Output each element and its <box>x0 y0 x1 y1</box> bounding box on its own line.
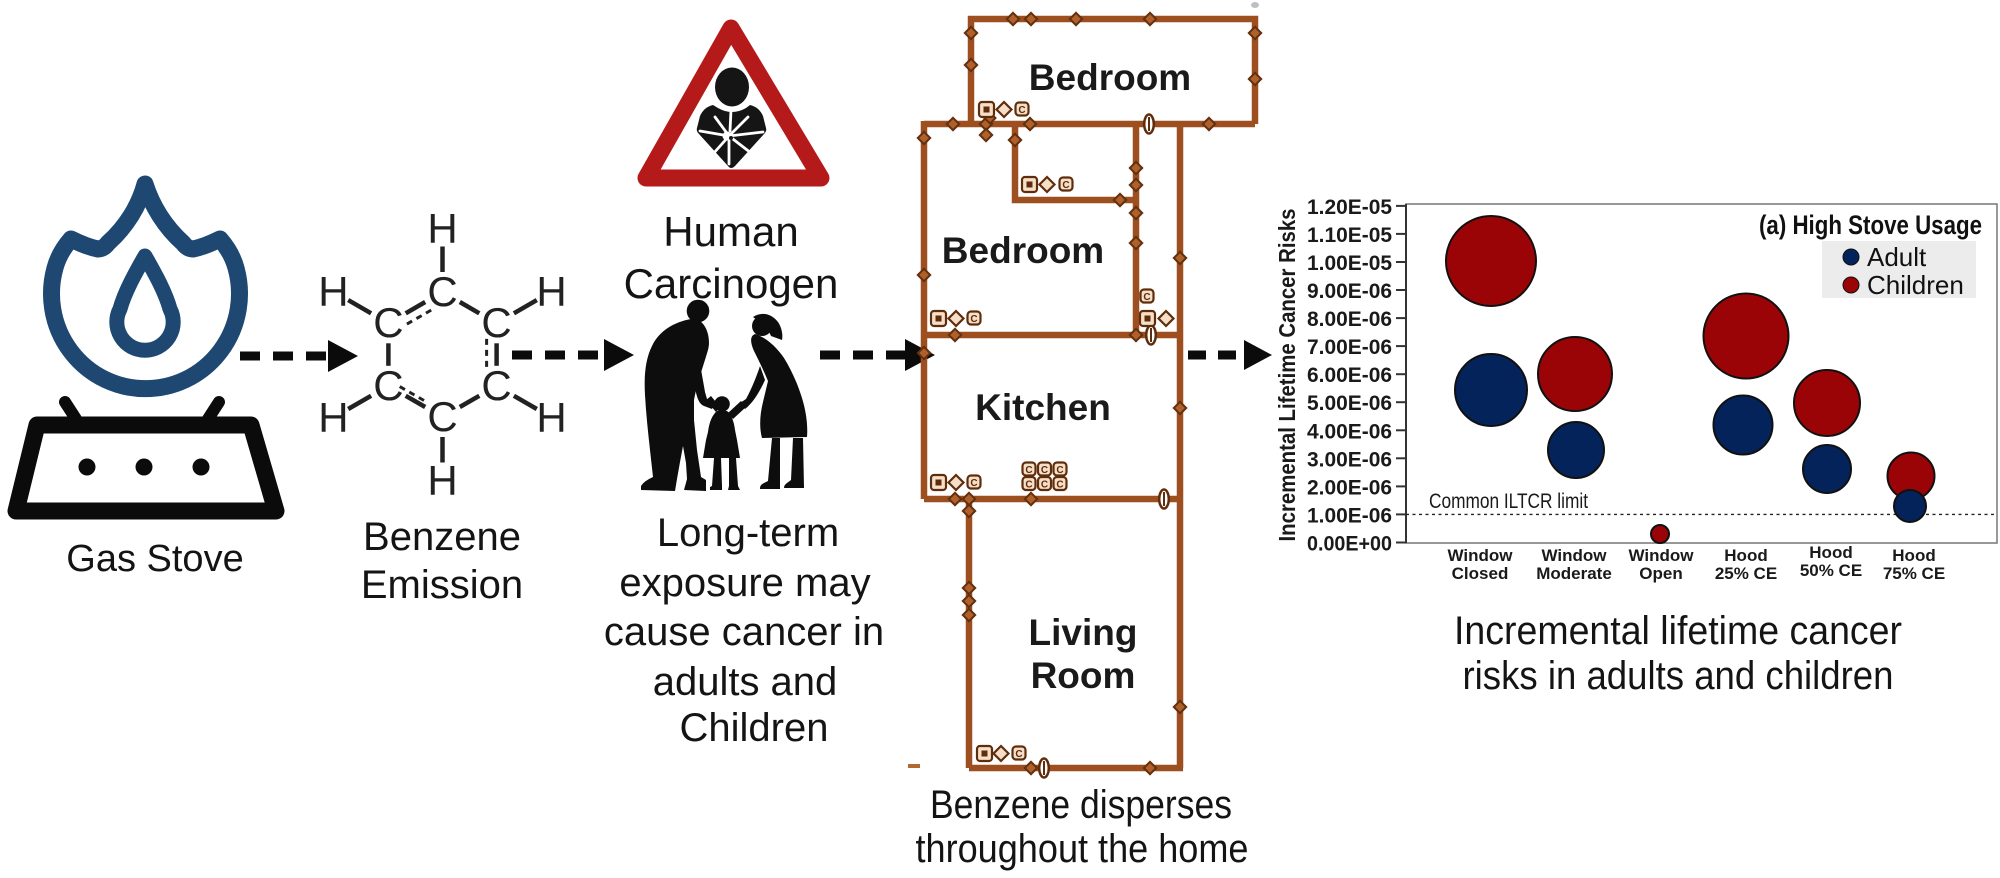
svg-text:Benzene disperses: Benzene disperses <box>930 783 1232 827</box>
svg-text:C: C <box>481 299 511 346</box>
svg-text:7.00E-06: 7.00E-06 <box>1307 336 1392 359</box>
svg-text:C: C <box>427 268 457 315</box>
svg-text:H: H <box>318 268 348 315</box>
svg-text:Hood: Hood <box>1724 546 1767 565</box>
svg-text:Hood: Hood <box>1892 546 1935 565</box>
svg-text:2.00E-06: 2.00E-06 <box>1307 476 1392 499</box>
svg-text:H: H <box>427 205 457 252</box>
svg-text:Children: Children <box>1867 270 1964 300</box>
svg-text:C: C <box>1025 480 1032 491</box>
svg-text:Window: Window <box>1448 546 1514 565</box>
svg-text:1.00E-06: 1.00E-06 <box>1307 504 1392 527</box>
svg-text:exposure may: exposure may <box>619 561 870 605</box>
svg-text:1.00E-05: 1.00E-05 <box>1307 252 1392 275</box>
svg-text:risks in adults and children: risks in adults and children <box>1463 654 1894 698</box>
svg-text:C: C <box>373 299 403 346</box>
svg-text:C: C <box>1018 105 1025 116</box>
svg-text:3.00E-06: 3.00E-06 <box>1307 448 1392 471</box>
svg-text:5.00E-06: 5.00E-06 <box>1307 392 1392 415</box>
svg-text:8.00E-06: 8.00E-06 <box>1307 308 1392 331</box>
svg-text:Window: Window <box>1542 546 1608 565</box>
svg-text:C: C <box>970 314 977 325</box>
svg-text:Open: Open <box>1639 564 1682 583</box>
svg-text:Hood: Hood <box>1809 543 1852 562</box>
svg-text:9.00E-06: 9.00E-06 <box>1307 280 1392 303</box>
svg-text:Gas Stove: Gas Stove <box>66 538 243 580</box>
svg-text:Adult: Adult <box>1867 242 1927 272</box>
svg-text:adults and: adults and <box>653 660 838 704</box>
svg-text:Incremental Lifetime Cancer Ri: Incremental Lifetime Cancer Risks <box>1274 209 1300 542</box>
svg-text:Kitchen: Kitchen <box>975 387 1111 428</box>
svg-text:C: C <box>1056 465 1063 476</box>
svg-text:C: C <box>970 478 977 489</box>
svg-text:H: H <box>318 394 348 441</box>
svg-text:0.00E+00: 0.00E+00 <box>1307 533 1392 556</box>
svg-text:Carcinogen: Carcinogen <box>624 260 839 307</box>
svg-text:50% CE: 50% CE <box>1800 561 1862 580</box>
svg-text:6.00E-06: 6.00E-06 <box>1307 364 1392 387</box>
svg-text:C: C <box>1056 480 1063 491</box>
svg-text:25% CE: 25% CE <box>1715 564 1777 583</box>
svg-text:C: C <box>427 393 457 440</box>
svg-text:C: C <box>1015 749 1022 760</box>
svg-text:H: H <box>536 268 566 315</box>
svg-text:C: C <box>1062 180 1069 191</box>
svg-text:C: C <box>481 362 511 409</box>
svg-text:Human: Human <box>663 208 798 255</box>
svg-text:Moderate: Moderate <box>1536 564 1612 583</box>
svg-text:1.20E-05: 1.20E-05 <box>1307 196 1392 219</box>
svg-text:1.10E-05: 1.10E-05 <box>1307 224 1392 247</box>
svg-text:Closed: Closed <box>1452 564 1509 583</box>
svg-text:C: C <box>373 362 403 409</box>
svg-text:C: C <box>1025 465 1032 476</box>
svg-text:Bedroom: Bedroom <box>942 230 1104 271</box>
svg-text:Emission: Emission <box>361 563 523 607</box>
svg-text:Room: Room <box>1031 655 1136 696</box>
svg-text:(a) High Stove Usage: (a) High Stove Usage <box>1759 210 1982 240</box>
svg-text:Long-term: Long-term <box>657 511 839 555</box>
svg-text:C: C <box>1143 292 1150 303</box>
svg-text:cause cancer in: cause cancer in <box>604 610 884 654</box>
svg-text:H: H <box>536 394 566 441</box>
svg-text:Bedroom: Bedroom <box>1029 57 1191 98</box>
svg-text:Children: Children <box>680 706 829 750</box>
svg-text:Benzene: Benzene <box>363 515 521 559</box>
svg-text:C: C <box>1041 465 1048 476</box>
svg-text:H: H <box>427 457 457 504</box>
svg-text:75% CE: 75% CE <box>1883 564 1945 583</box>
svg-text:Common ILTCR limit: Common ILTCR limit <box>1429 490 1588 513</box>
svg-text:Living: Living <box>1029 612 1138 653</box>
svg-text:4.00E-06: 4.00E-06 <box>1307 420 1392 443</box>
svg-text:throughout the home: throughout the home <box>916 827 1249 871</box>
svg-text:C: C <box>1041 480 1048 491</box>
svg-text:Window: Window <box>1629 546 1695 565</box>
svg-text:Incremental lifetime cancer: Incremental lifetime cancer <box>1454 609 1902 653</box>
